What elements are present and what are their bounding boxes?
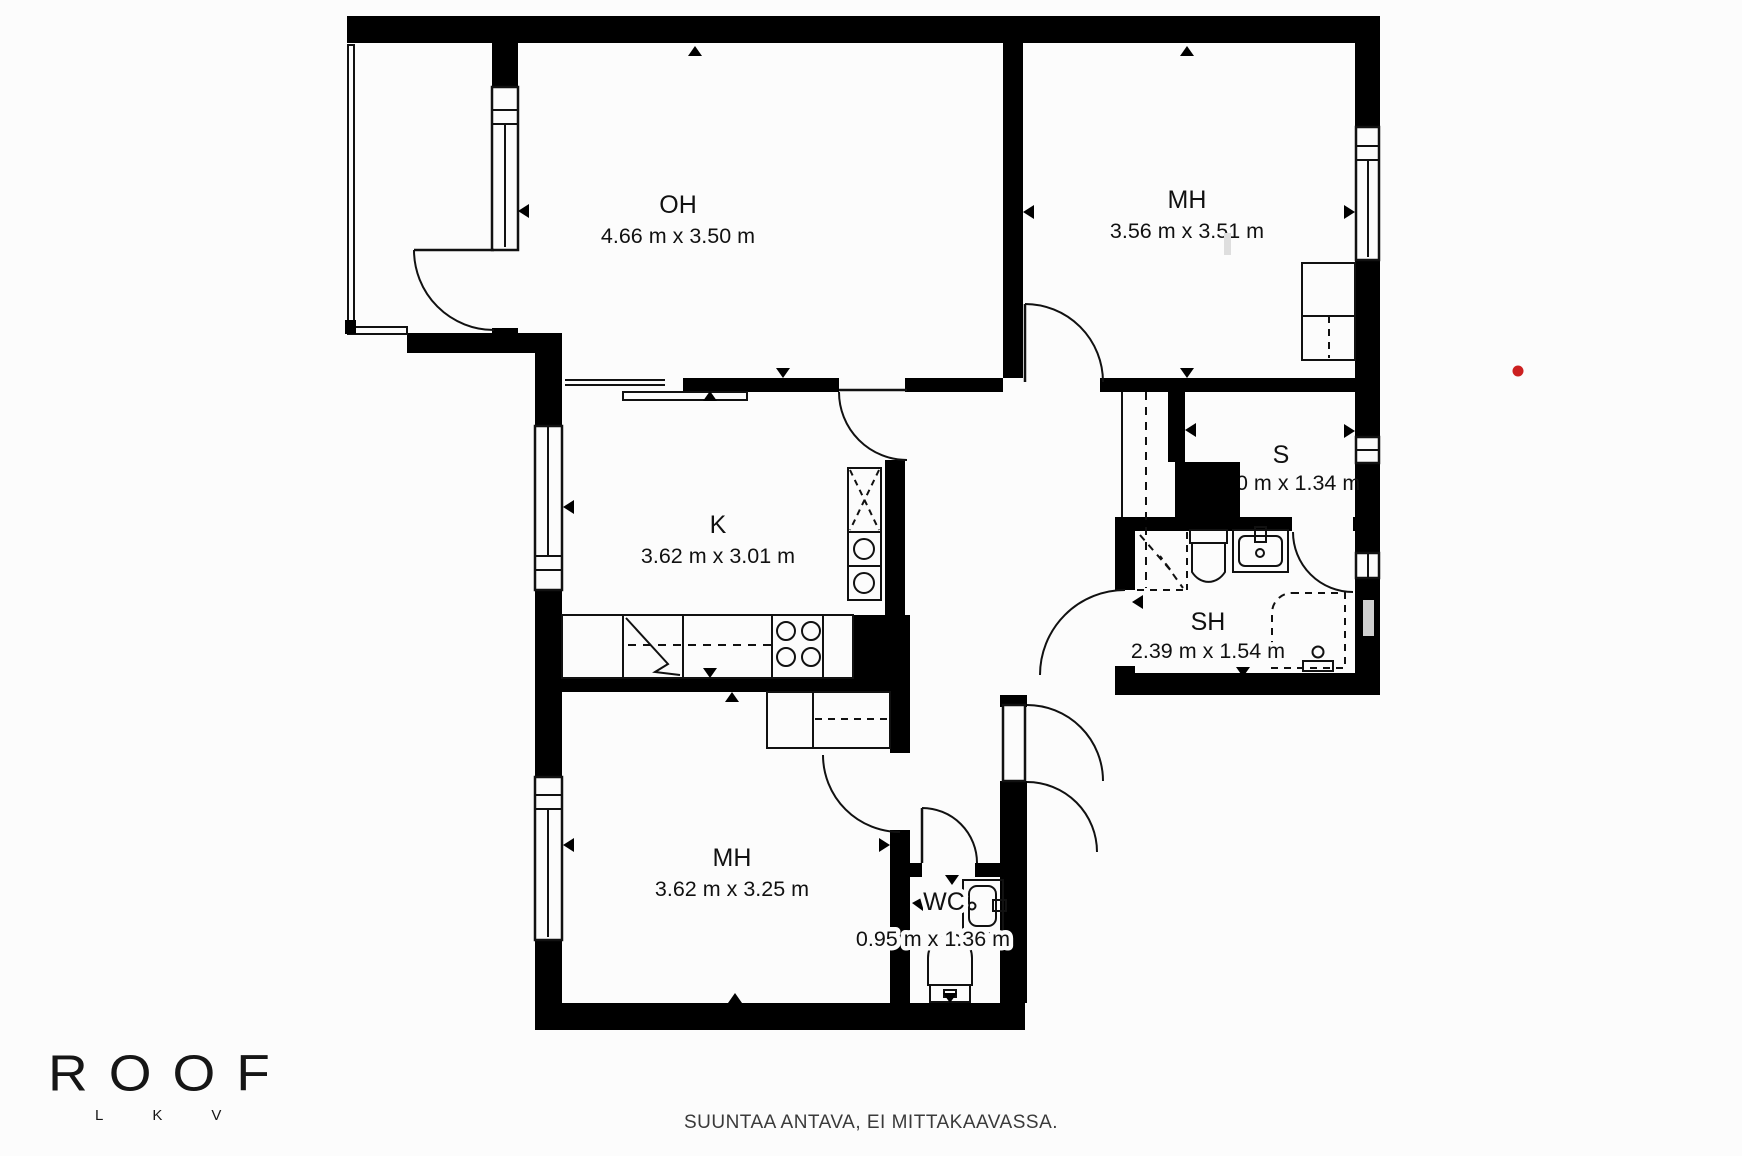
window-kitchen: [535, 426, 562, 590]
wall-s-sh-stub: [1353, 517, 1380, 531]
wall-k-right: [885, 460, 905, 617]
door-kitchen: [839, 390, 907, 460]
arrow-icon: [1132, 595, 1143, 609]
arrow-icon: [725, 692, 739, 702]
arrow-icon: [1180, 368, 1194, 378]
arrow-icon: [1344, 205, 1355, 219]
wall-s-sh-divider: [1135, 517, 1292, 531]
wall-left-1: [535, 350, 562, 426]
shower-icon: [1137, 532, 1187, 590]
arrow-icon: [688, 46, 702, 56]
door-sauna: [1293, 532, 1353, 592]
room-dims-k: 3.62 m x 3.01 m: [641, 544, 795, 568]
arrow-icon: [912, 897, 923, 911]
room-dims-sh: 2.39 m x 1.54 m: [1131, 639, 1285, 663]
arrow-icon: [728, 993, 742, 1003]
wall-left-2: [535, 590, 562, 777]
stove-icon: [777, 622, 820, 666]
wardrobe-bedroom-bottom: [767, 692, 890, 748]
wall-right-lower: [1000, 781, 1027, 1003]
door-balcony: [414, 250, 494, 330]
room-dims-mh-top: 3.56 m x 3.51 m: [1110, 219, 1264, 243]
arrow-icon: [1344, 424, 1355, 438]
wall-s-left: [1168, 392, 1185, 462]
wall-oh-k: [683, 378, 839, 392]
room-label-oh: OH: [659, 191, 697, 219]
sink-basin-icon: [854, 539, 874, 559]
sh-sink-icon: [1233, 527, 1288, 572]
kitchen-sink-units: [848, 468, 881, 600]
sink-basin-icon: [854, 573, 874, 593]
door-bedroom-top: [1025, 304, 1103, 382]
floorplan-page: OH 4.66 m x 3.50 m MH 3.56 m x 3.51 m K …: [0, 0, 1742, 1156]
arrow-icon: [945, 875, 959, 885]
room-label-mh-top: MH: [1168, 186, 1207, 214]
wall-wc-top-right: [975, 863, 1002, 877]
room-dims-s: 0 m x 1.34 m: [1236, 471, 1360, 495]
door-bedroom-bottom: [823, 755, 900, 832]
room-dims-oh: 4.66 m x 3.50 m: [601, 224, 755, 248]
wall-sh-left-stub: [1115, 666, 1135, 695]
sh-toilet-icon: [1190, 530, 1227, 582]
room-label-mh-bottom: MH: [713, 844, 752, 872]
wall-hall-top: [905, 378, 1003, 392]
window-sauna: [1356, 437, 1379, 463]
arrow-icon: [1185, 423, 1196, 437]
arrow-icon: [518, 204, 529, 218]
sliding-panel: [623, 392, 747, 400]
room-label-s: S: [1273, 441, 1290, 469]
wall-bottom: [535, 1003, 1025, 1030]
room-dims-mh-bottom: 3.62 m x 3.25 m: [655, 877, 809, 901]
arrow-icon: [1023, 205, 1034, 219]
watermark-artifact: [1363, 600, 1374, 636]
wall-oh-mh-divider: [1003, 43, 1023, 378]
arrow-icon: [563, 838, 574, 852]
red-dot-marker: [1513, 366, 1524, 377]
disclaimer-text: SUUNTAA ANTAVA, EI MITTAKAAVASSA.: [0, 1112, 1742, 1134]
window-balcony-door-side: [492, 87, 518, 250]
wall-sh-left: [1115, 517, 1135, 590]
wardrobe-bedroom-top: [1302, 263, 1355, 360]
window-shower: [1356, 553, 1379, 578]
wall-mh2-right-upper: [890, 692, 910, 753]
kitchen-fixtures: [562, 468, 881, 678]
wall-k-bottom: [562, 678, 853, 692]
door-wc: [922, 808, 977, 863]
wall-right: [1355, 16, 1380, 695]
arrow-icon: [776, 368, 790, 378]
door-shower-room: [1040, 590, 1125, 675]
floorplan-drawing: OH 4.66 m x 3.50 m MH 3.56 m x 3.51 m K …: [0, 0, 1742, 1156]
wall-wc-top-left: [910, 863, 922, 877]
wall-s-corner-overlay: [1175, 462, 1240, 517]
wall-mh2-right-lower: [890, 830, 910, 1003]
balcony-railing: [345, 45, 407, 334]
railing-post: [345, 320, 356, 334]
watermark-artifact: [1224, 233, 1231, 255]
wc-sink-icon: [963, 880, 1006, 933]
wall-sh-bottom: [1115, 673, 1380, 695]
logo-name: ROOF: [48, 1048, 278, 1099]
wall-k-corner: [853, 615, 910, 692]
room-label-k: K: [710, 511, 727, 539]
wall-top: [347, 16, 1380, 43]
wall-band-right: [1100, 378, 1380, 392]
room-labels: OH 4.66 m x 3.50 m MH 3.56 m x 3.51 m K …: [601, 186, 1360, 951]
window-bedroom-top: [1356, 127, 1379, 260]
arrow-icon: [563, 500, 574, 514]
room-label-sh: SH: [1191, 608, 1226, 636]
windows: [492, 87, 1379, 940]
arrow-icon: [879, 838, 890, 852]
wall-oh-left-upper: [492, 43, 518, 87]
room-label-wc: WC: [923, 888, 965, 916]
window-bedroom-bottom: [535, 777, 562, 940]
arrow-icon: [1180, 46, 1194, 56]
fridge-icon: [626, 618, 680, 675]
room-dims-wc: 0.95 m x 1.36 m: [856, 927, 1010, 951]
arrow-icon: [703, 668, 717, 678]
